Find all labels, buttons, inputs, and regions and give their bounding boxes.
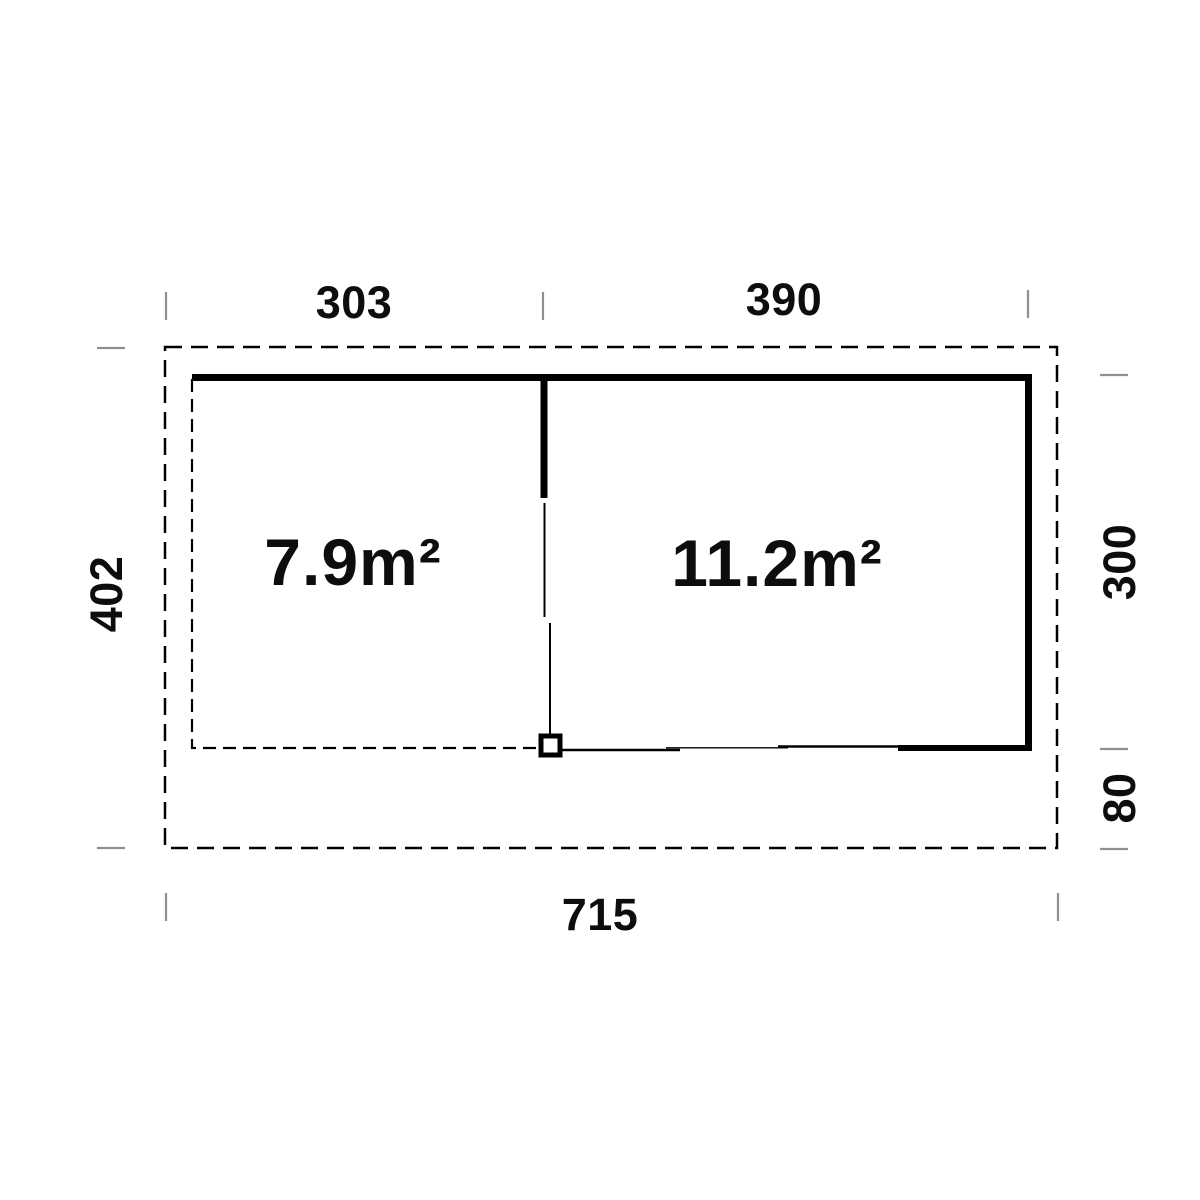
dimension-label-total-width: 715 <box>562 889 639 941</box>
dimension-label-top-left-width: 303 <box>316 277 393 329</box>
floor-plan-drawing <box>0 0 1200 1200</box>
dimension-ticks <box>97 290 1128 921</box>
dimension-label-main-depth: 300 <box>1094 524 1146 601</box>
dimension-label-top-right-width: 390 <box>746 274 823 326</box>
dimension-label-total-depth: 402 <box>81 556 133 633</box>
floor-plan: 303 390 402 300 80 715 7.9m² 11.2m² <box>0 0 1200 1200</box>
dimension-label-overhang-depth: 80 <box>1094 772 1146 823</box>
corner-post <box>541 736 560 755</box>
room-area-label-left: 7.9m² <box>264 524 441 600</box>
room-area-label-right: 11.2m² <box>671 525 882 601</box>
